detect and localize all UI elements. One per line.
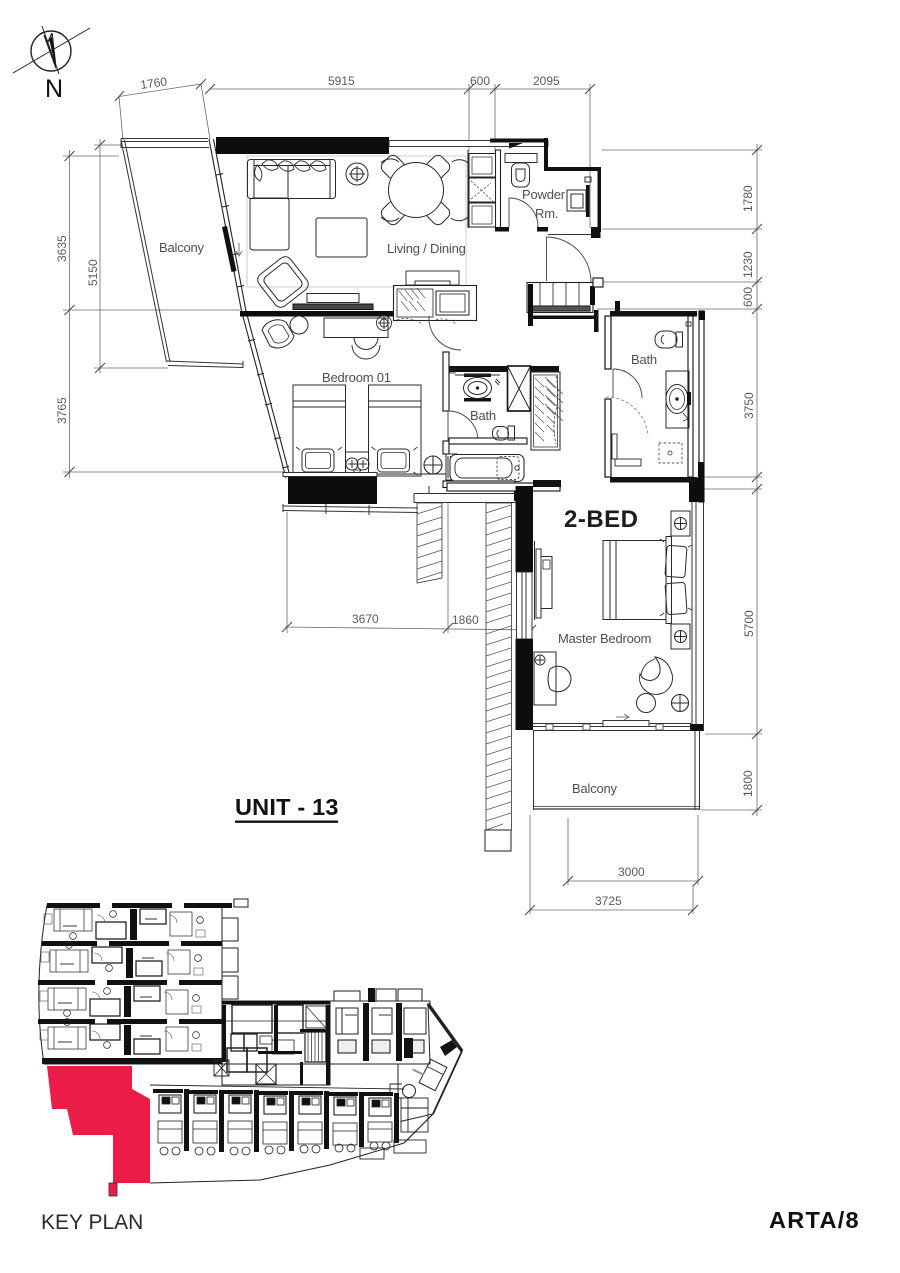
svg-text:Living / Dining: Living / Dining — [387, 241, 466, 256]
svg-text:Master Bedroom: Master Bedroom — [558, 631, 651, 646]
svg-text:Balcony: Balcony — [159, 240, 205, 255]
svg-text:2095: 2095 — [533, 74, 560, 88]
svg-text:5915: 5915 — [328, 74, 355, 88]
svg-text:UNIT - 13: UNIT - 13 — [235, 794, 339, 820]
svg-text:KEY PLAN: KEY PLAN — [41, 1211, 143, 1234]
svg-text:ARTA/8: ARTA/8 — [769, 1207, 860, 1233]
svg-text:Bedroom 01: Bedroom 01 — [322, 370, 391, 385]
svg-text:600: 600 — [741, 287, 755, 307]
svg-text:Rm.: Rm. — [535, 206, 558, 221]
svg-text:3635: 3635 — [55, 235, 69, 262]
svg-text:5700: 5700 — [742, 610, 756, 637]
svg-text:Balcony: Balcony — [572, 781, 618, 796]
svg-text:3670: 3670 — [352, 612, 379, 626]
svg-text:600: 600 — [470, 74, 490, 88]
svg-text:1800: 1800 — [741, 770, 755, 797]
svg-text:N: N — [45, 75, 63, 103]
svg-text:5150: 5150 — [86, 259, 100, 286]
svg-text:Powder: Powder — [522, 187, 566, 202]
svg-text:1780: 1780 — [741, 185, 755, 212]
svg-text:3750: 3750 — [742, 392, 756, 419]
svg-text:Bath: Bath — [631, 352, 657, 367]
svg-text:1230: 1230 — [741, 251, 755, 278]
svg-text:3725: 3725 — [595, 894, 622, 908]
svg-text:1860: 1860 — [452, 613, 479, 627]
svg-text:3765: 3765 — [55, 397, 69, 424]
svg-text:3000: 3000 — [618, 865, 645, 879]
svg-text:2-BED: 2-BED — [564, 506, 639, 533]
svg-text:Bath: Bath — [470, 408, 496, 423]
